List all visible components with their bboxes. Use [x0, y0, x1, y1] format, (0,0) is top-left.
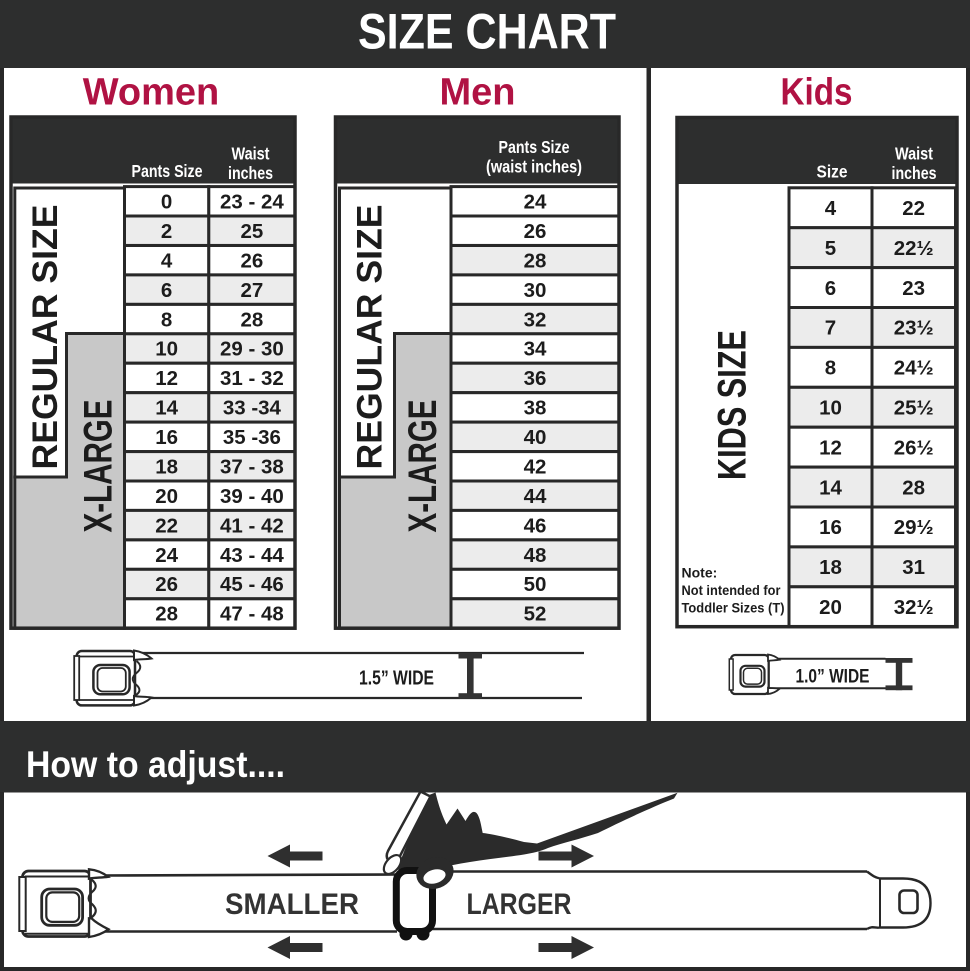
svg-text:23 - 24: 23 - 24 [220, 191, 284, 214]
svg-text:Kids: Kids [781, 72, 853, 114]
svg-text:22: 22 [902, 197, 925, 220]
svg-text:18: 18 [155, 456, 178, 479]
svg-text:45 - 46: 45 - 46 [220, 573, 284, 596]
svg-text:Women: Women [83, 72, 220, 114]
svg-text:38: 38 [524, 397, 547, 420]
svg-text:12: 12 [819, 436, 842, 459]
svg-text:Size: Size [817, 162, 848, 182]
svg-text:inches: inches [228, 163, 273, 183]
svg-text:30: 30 [524, 279, 547, 302]
svg-text:5: 5 [825, 237, 836, 260]
svg-text:46: 46 [524, 514, 547, 537]
svg-text:43 - 44: 43 - 44 [220, 544, 284, 567]
svg-text:48: 48 [524, 544, 547, 567]
svg-text:40: 40 [524, 426, 547, 449]
svg-text:31 - 32: 31 - 32 [220, 367, 284, 390]
svg-text:41 - 42: 41 - 42 [220, 514, 284, 537]
svg-text:29½: 29½ [894, 516, 934, 539]
svg-text:24: 24 [155, 544, 178, 567]
svg-text:31: 31 [902, 556, 925, 579]
svg-text:7: 7 [825, 317, 836, 340]
svg-text:0: 0 [161, 191, 172, 214]
svg-text:LARGER: LARGER [467, 888, 572, 921]
svg-text:33 -34: 33 -34 [223, 397, 282, 420]
svg-text:28: 28 [902, 476, 925, 499]
svg-text:Toddler Sizes (T): Toddler Sizes (T) [682, 600, 785, 616]
svg-text:36: 36 [524, 367, 547, 390]
svg-text:inches: inches [892, 163, 937, 183]
svg-text:26: 26 [155, 573, 178, 596]
svg-text:35 -36: 35 -36 [223, 426, 281, 449]
svg-text:2: 2 [161, 220, 172, 243]
svg-text:26½: 26½ [894, 436, 934, 459]
svg-text:Not intended for: Not intended for [682, 582, 781, 598]
svg-text:8: 8 [825, 357, 836, 380]
svg-text:52: 52 [524, 603, 547, 626]
svg-text:24: 24 [524, 191, 547, 214]
svg-text:Pants Size: Pants Size [499, 137, 570, 157]
svg-text:22: 22 [155, 514, 178, 537]
svg-text:29 - 30: 29 - 30 [220, 338, 284, 361]
svg-text:26: 26 [240, 249, 263, 272]
svg-text:20: 20 [155, 485, 178, 508]
svg-text:4: 4 [161, 249, 173, 272]
svg-text:10: 10 [155, 338, 178, 361]
svg-text:1.0” WIDE: 1.0” WIDE [796, 667, 870, 688]
svg-text:25: 25 [240, 220, 263, 243]
svg-text:6: 6 [161, 279, 172, 302]
svg-text:Note:: Note: [682, 565, 718, 581]
svg-text:18: 18 [819, 556, 842, 579]
svg-text:1.5” WIDE: 1.5” WIDE [359, 668, 434, 690]
svg-text:32½: 32½ [894, 596, 934, 619]
svg-text:10: 10 [819, 397, 842, 420]
svg-text:X-LARGE: X-LARGE [77, 400, 121, 533]
svg-text:How to adjust....: How to adjust.... [26, 744, 285, 785]
svg-text:X-LARGE: X-LARGE [401, 400, 445, 533]
svg-text:37 - 38: 37 - 38 [220, 456, 284, 479]
svg-text:REGULAR SIZE: REGULAR SIZE [350, 205, 389, 470]
svg-text:16: 16 [819, 516, 842, 539]
svg-text:42: 42 [524, 456, 547, 479]
svg-text:47 - 48: 47 - 48 [220, 603, 284, 626]
svg-text:Waist: Waist [232, 144, 270, 164]
svg-text:12: 12 [155, 367, 178, 390]
svg-text:23½: 23½ [894, 317, 934, 340]
svg-text:22½: 22½ [894, 237, 934, 260]
svg-text:20: 20 [819, 596, 842, 619]
svg-text:24½: 24½ [894, 357, 934, 380]
svg-text:44: 44 [524, 485, 547, 508]
svg-text:23: 23 [902, 277, 925, 300]
svg-text:Pants Size: Pants Size [132, 161, 203, 181]
svg-text:(waist inches): (waist inches) [486, 157, 582, 177]
svg-text:4: 4 [825, 197, 837, 220]
svg-text:Men: Men [440, 72, 516, 114]
svg-text:28: 28 [155, 603, 178, 626]
svg-text:Waist: Waist [895, 144, 933, 164]
svg-text:SIZE CHART: SIZE CHART [358, 4, 616, 60]
svg-text:14: 14 [155, 397, 178, 420]
svg-text:39 - 40: 39 - 40 [220, 485, 284, 508]
svg-text:32: 32 [524, 308, 547, 331]
svg-text:16: 16 [155, 426, 178, 449]
svg-text:8: 8 [161, 308, 172, 331]
svg-text:KIDS SIZE: KIDS SIZE [711, 330, 755, 480]
svg-text:26: 26 [524, 220, 547, 243]
svg-text:6: 6 [825, 277, 836, 300]
svg-text:14: 14 [819, 476, 842, 499]
svg-text:SMALLER: SMALLER [225, 888, 359, 921]
svg-text:34: 34 [524, 338, 547, 361]
svg-text:27: 27 [240, 279, 263, 302]
svg-text:25½: 25½ [894, 397, 934, 420]
svg-text:50: 50 [524, 573, 547, 596]
svg-text:28: 28 [240, 308, 263, 331]
svg-text:28: 28 [524, 249, 547, 272]
svg-text:REGULAR SIZE: REGULAR SIZE [26, 205, 65, 470]
